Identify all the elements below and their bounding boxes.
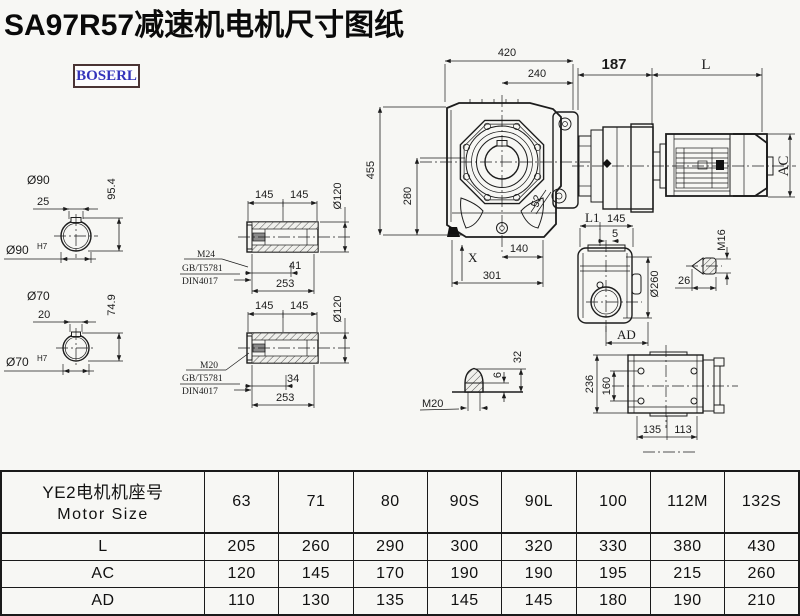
cell: 260	[725, 561, 799, 588]
bore-bottom-key-width: 20	[38, 309, 50, 321]
motor-size-table: YE2电机机座号 Motor Size 63 71 80 90S 90L 100…	[0, 470, 800, 616]
cell: 320	[502, 533, 576, 561]
cell: 135	[353, 588, 427, 616]
plug-m16-thread: M16	[716, 229, 728, 250]
shaft-bot-dim-depth: 34	[287, 373, 299, 385]
row-label: AD	[1, 588, 205, 616]
dim-ad: AD	[617, 327, 636, 342]
vent-dim-32: 32	[512, 351, 524, 363]
table-row-L: L 205 260 290 300 320 330 380 430	[1, 533, 799, 561]
dim-26: 26	[678, 275, 690, 287]
table-row-AD: AD 110 130 135 145 145 180 190 210	[1, 588, 799, 616]
dim-5: 5	[612, 228, 618, 240]
drawing-sheet: SA97R57减速机电机尺寸图纸 BOSERL Ø90 25	[0, 0, 800, 613]
bore-top-fit-sup: H7	[37, 242, 48, 251]
cell: 290	[353, 533, 427, 561]
bore-bottom-fit-label: Ø70	[6, 355, 29, 369]
bore-top-dia-label: Ø90	[27, 173, 50, 187]
size-col: 100	[576, 471, 650, 533]
gearbox-front-view: 52	[420, 95, 590, 252]
shaft-bot-dim-145-left: 145	[255, 300, 273, 312]
cell: 195	[576, 561, 650, 588]
output-shaft-bottom: 145 145 Ø120 M20 GB/T5781 DIN4	[180, 296, 352, 408]
motor-side-view	[572, 124, 796, 212]
table-header-row: YE2电机机座号 Motor Size 63 71 80 90S 90L 100…	[1, 471, 799, 533]
dim-260: Ø260	[649, 271, 661, 298]
cell: 190	[502, 561, 576, 588]
shaft-top-standard-din: DIN4017	[182, 277, 218, 287]
dim-236: 236	[584, 375, 596, 393]
row-label: AC	[1, 561, 205, 588]
size-col: 132S	[725, 471, 799, 533]
gearbox-top-view: 160 236 135 113	[584, 345, 738, 452]
dim-160: 160	[601, 377, 613, 395]
vent-plug-m20-detail: M20 6 32	[420, 351, 526, 411]
bore-detail-top: Ø90 25 95.4 Ø90 H7	[4, 173, 123, 263]
bore-bottom-key-height: 74.9	[106, 294, 118, 315]
table-row-AC: AC 120 145 170 190 190 195 215 260	[1, 561, 799, 588]
shaft-key-symbol	[603, 159, 612, 168]
cell: 190	[650, 588, 724, 616]
shaft-top-standard-gb: GB/T5781	[182, 264, 223, 274]
dim-301: 301	[483, 270, 501, 282]
table-header-en: Motor Size	[2, 506, 204, 524]
table-header-cn: YE2电机机座号	[2, 480, 204, 506]
cell: 215	[650, 561, 724, 588]
size-col: 80	[353, 471, 427, 533]
shaft-top-thread: M24	[197, 250, 215, 260]
bore-bottom-fit-sup: H7	[37, 354, 48, 363]
bore-detail-bottom: Ø70 20 74.9 Ø70 H7	[4, 289, 123, 375]
size-col: 112M	[650, 471, 724, 533]
output-shaft-top: 145 145 Ø120 M24 GB/T5781 DIN4	[180, 183, 352, 294]
dim-l1: L1	[585, 210, 599, 225]
cell: 130	[279, 588, 353, 616]
bore-top-fit-label: Ø90	[6, 243, 29, 257]
dim-280: 280	[402, 187, 414, 205]
cell: 205	[205, 533, 279, 561]
dim-187: 187	[601, 56, 626, 73]
cell: 300	[427, 533, 501, 561]
plug-m16-detail: M16 26	[675, 229, 731, 291]
gearbox-side-view: L1 145 5 Ø260 AD	[578, 210, 661, 346]
cell: 110	[205, 588, 279, 616]
motor-terminal-mark	[716, 160, 724, 170]
bore-top-key-height: 95.4	[106, 178, 118, 199]
cell: 145	[279, 561, 353, 588]
shaft-top-dim-145-right: 145	[290, 189, 308, 201]
cell: 145	[427, 588, 501, 616]
dim-113: 113	[674, 424, 692, 436]
vent-thread: M20	[422, 398, 443, 410]
shaft-bot-dim-145-right: 145	[290, 300, 308, 312]
cell: 180	[576, 588, 650, 616]
oil-plug	[447, 227, 460, 237]
dim-455: 455	[365, 161, 377, 179]
cell: 330	[576, 533, 650, 561]
size-col: 71	[279, 471, 353, 533]
dim-side-145: 145	[607, 213, 625, 225]
shaft-bot-dim-length: 253	[276, 392, 294, 404]
cell: 380	[650, 533, 724, 561]
cell: 190	[427, 561, 501, 588]
dim-140: 140	[510, 243, 528, 255]
dim-135: 135	[643, 424, 661, 436]
size-col: 63	[205, 471, 279, 533]
dim-420: 420	[498, 47, 516, 59]
motor-end-cap	[733, 134, 767, 196]
cell: 210	[725, 588, 799, 616]
dim-motor-length: L	[701, 57, 710, 73]
shaft-top-dia: Ø120	[332, 183, 344, 210]
bore-bottom-dia-label: Ø70	[27, 289, 50, 303]
cell: 170	[353, 561, 427, 588]
shaft-bot-standard-gb: GB/T5781	[182, 374, 223, 384]
shaft-bot-dia: Ø120	[332, 296, 344, 323]
shaft-top-dim-length: 253	[276, 278, 294, 290]
technical-drawing: Ø90 25 95.4 Ø90 H7 Ø70 20	[0, 0, 800, 470]
cell: 120	[205, 561, 279, 588]
size-col: 90S	[427, 471, 501, 533]
shaft-bot-thread: M20	[200, 361, 218, 371]
row-label: L	[1, 533, 205, 561]
shaft-top-dim-145-left: 145	[255, 189, 273, 201]
cell: 260	[279, 533, 353, 561]
cell: 430	[725, 533, 799, 561]
cell: 145	[502, 588, 576, 616]
dim-240: 240	[528, 68, 546, 80]
table-header-label: YE2电机机座号 Motor Size	[1, 471, 205, 533]
size-col: 90L	[502, 471, 576, 533]
shaft-bot-standard-din: DIN4017	[182, 387, 218, 397]
bore-top-key-width: 25	[37, 196, 49, 208]
vent-dim-6: 6	[492, 372, 504, 378]
dim-x: X	[468, 250, 478, 265]
